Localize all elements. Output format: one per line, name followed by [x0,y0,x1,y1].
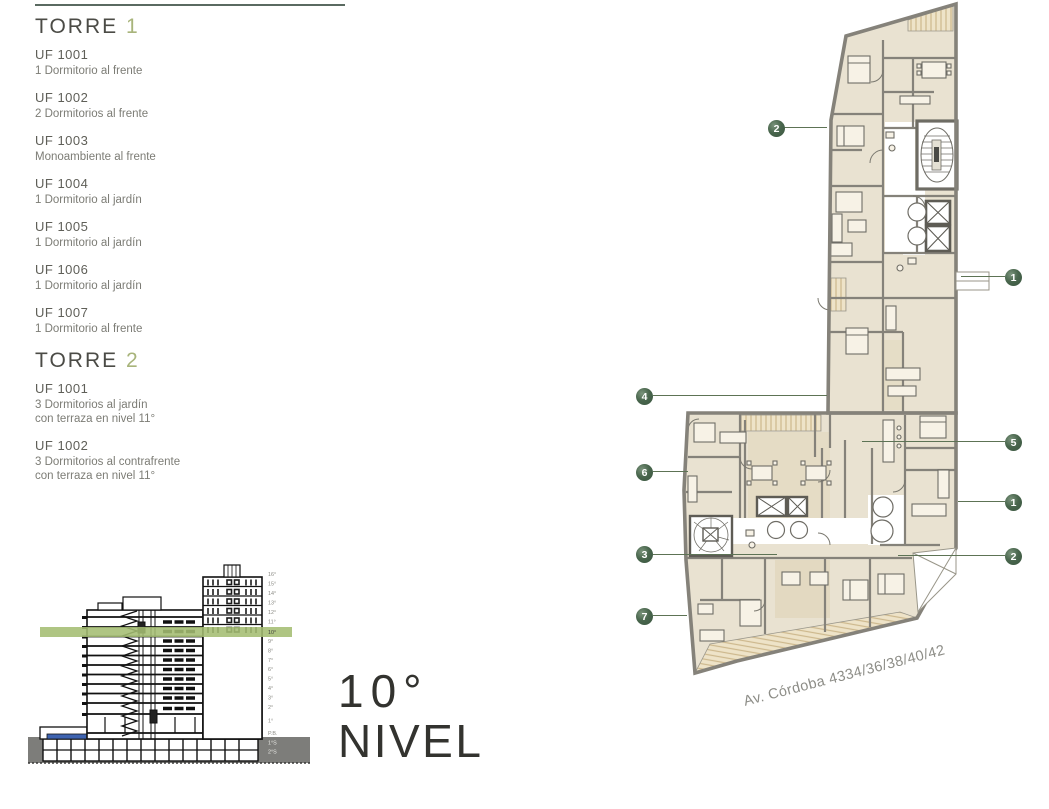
unit-code: UF 1005 [35,220,335,234]
unit-desc: 3 Dormitorios al jardín [35,398,335,412]
marker-number: 3 [642,549,648,561]
marker-number: 2 [1011,551,1017,563]
level-title-word: NIVEL [338,716,483,766]
section-level-band [40,627,292,637]
plan-marker-1-right-top: 1 [1005,269,1022,286]
section-level-label: 1°S [268,741,277,747]
marker-leader [862,441,1005,442]
marker-number: 6 [642,467,648,479]
marker-leader [653,471,688,472]
section-level-label: 15° [268,582,276,588]
unit-item: UF 10013 Dormitorios al jardíncon terraz… [35,382,335,426]
torre2-title: TORRE 2 [35,349,335,373]
section-level-label: 9° [268,639,273,645]
unit-desc: 1 Dormitorio al frente [35,64,335,78]
unit-item: UF 10022 Dormitorios al frente [35,91,335,121]
marker-leader [653,615,687,616]
building-section-drawing: 16° 15° 14° 13° 12° 11° 10° 9° 8° 7° 6° … [25,550,317,782]
section-level-labels: 16° 15° 14° 13° 12° 11° 10° 9° 8° 7° 6° … [268,572,278,756]
unit-desc: 3 Dormitorios al contrafrente [35,455,335,469]
unit-item: UF 1003Monoambiente al frente [35,134,335,164]
unit-item: UF 10041 Dormitorio al jardín [35,177,335,207]
marker-number: 1 [1011,497,1017,509]
unit-desc: 2 Dormitorios al frente [35,107,335,121]
plan-marker-2-top: 2 [768,120,785,137]
section-level-label: 16° [268,572,276,578]
unit-code: UF 1002 [35,91,335,105]
plan-marker-2-right: 2 [1005,548,1022,565]
marker-leader [958,501,1005,502]
marker-number: 4 [642,391,648,403]
plan-marker-7: 7 [636,608,653,625]
unit-desc: Monoambiente al frente [35,150,335,164]
torre1-title: TORRE 1 [35,15,335,39]
section-level-label: 6° [268,667,273,673]
unit-code: UF 1006 [35,263,335,277]
plan-marker-1-right-mid: 1 [1005,494,1022,511]
torre1-title-word: TORRE [35,15,118,38]
unit-code: UF 1007 [35,306,335,320]
unit-desc: 1 Dormitorio al frente [35,322,335,336]
plan-marker-6: 6 [636,464,653,481]
unit-code: UF 1001 [35,48,335,62]
unit-desc-line2: con terraza en nivel 11° [35,412,335,426]
floor-plan-drawing [600,0,1049,770]
unit-desc-line2: con terraza en nivel 11° [35,469,335,483]
page: TORRE 1 UF 10011 Dormitorio al frente UF… [0,0,1049,809]
marker-leader [653,554,777,555]
marker-number: 7 [642,611,648,623]
section-basement [43,739,258,761]
section-level-label: 2° [268,705,273,711]
top-rule [35,4,345,6]
unit-code: UF 1001 [35,382,335,396]
unit-code: UF 1002 [35,439,335,453]
section-level-label: 13° [268,601,276,607]
unit-desc: 1 Dormitorio al jardín [35,236,335,250]
section-right-tower [203,565,262,739]
section-level-label: 3° [268,696,273,702]
torre2-title-number: 2 [126,349,140,372]
section-level-label: 1° [268,719,273,725]
section-level-label: 4° [268,686,273,692]
marker-number: 5 [1011,437,1017,449]
section-level-label: 2°S [268,750,277,756]
marker-leader [784,127,827,128]
unit-item: UF 10061 Dormitorio al jardín [35,263,335,293]
section-level-label: 12° [268,610,276,616]
level-title: 10° NIVEL [338,666,483,766]
unit-item: UF 10011 Dormitorio al frente [35,48,335,78]
section-level-label: 8° [268,649,273,655]
unit-item: UF 10051 Dormitorio al jardín [35,220,335,250]
plan-marker-4: 4 [636,388,653,405]
plan-marker-3: 3 [636,546,653,563]
torre2-title-word: TORRE [35,349,118,372]
marker-leader [961,276,1005,277]
section-level-label: 5° [268,677,273,683]
marker-leader [898,555,1005,556]
unit-code: UF 1003 [35,134,335,148]
unit-item: UF 10071 Dormitorio al frente [35,306,335,336]
unit-desc: 1 Dormitorio al jardín [35,279,335,293]
section-level-label: P.B. [268,731,278,737]
marker-number: 2 [774,123,780,135]
plan-marker-5: 5 [1005,434,1022,451]
marker-leader [653,395,827,396]
torre1-title-number: 1 [126,15,140,38]
section-level-label: 7° [268,658,273,664]
marker-number: 1 [1011,272,1017,284]
unit-listing: TORRE 1 UF 10011 Dormitorio al frente UF… [35,15,335,496]
section-level-label: 11° [268,620,276,626]
unit-desc: 1 Dormitorio al jardín [35,193,335,207]
unit-code: UF 1004 [35,177,335,191]
section-level-label-highlight: 10° [268,630,276,636]
section-level-label: 14° [268,591,276,597]
level-title-number: 10° [338,666,483,716]
unit-item: UF 10023 Dormitorios al contrafrentecon … [35,439,335,483]
